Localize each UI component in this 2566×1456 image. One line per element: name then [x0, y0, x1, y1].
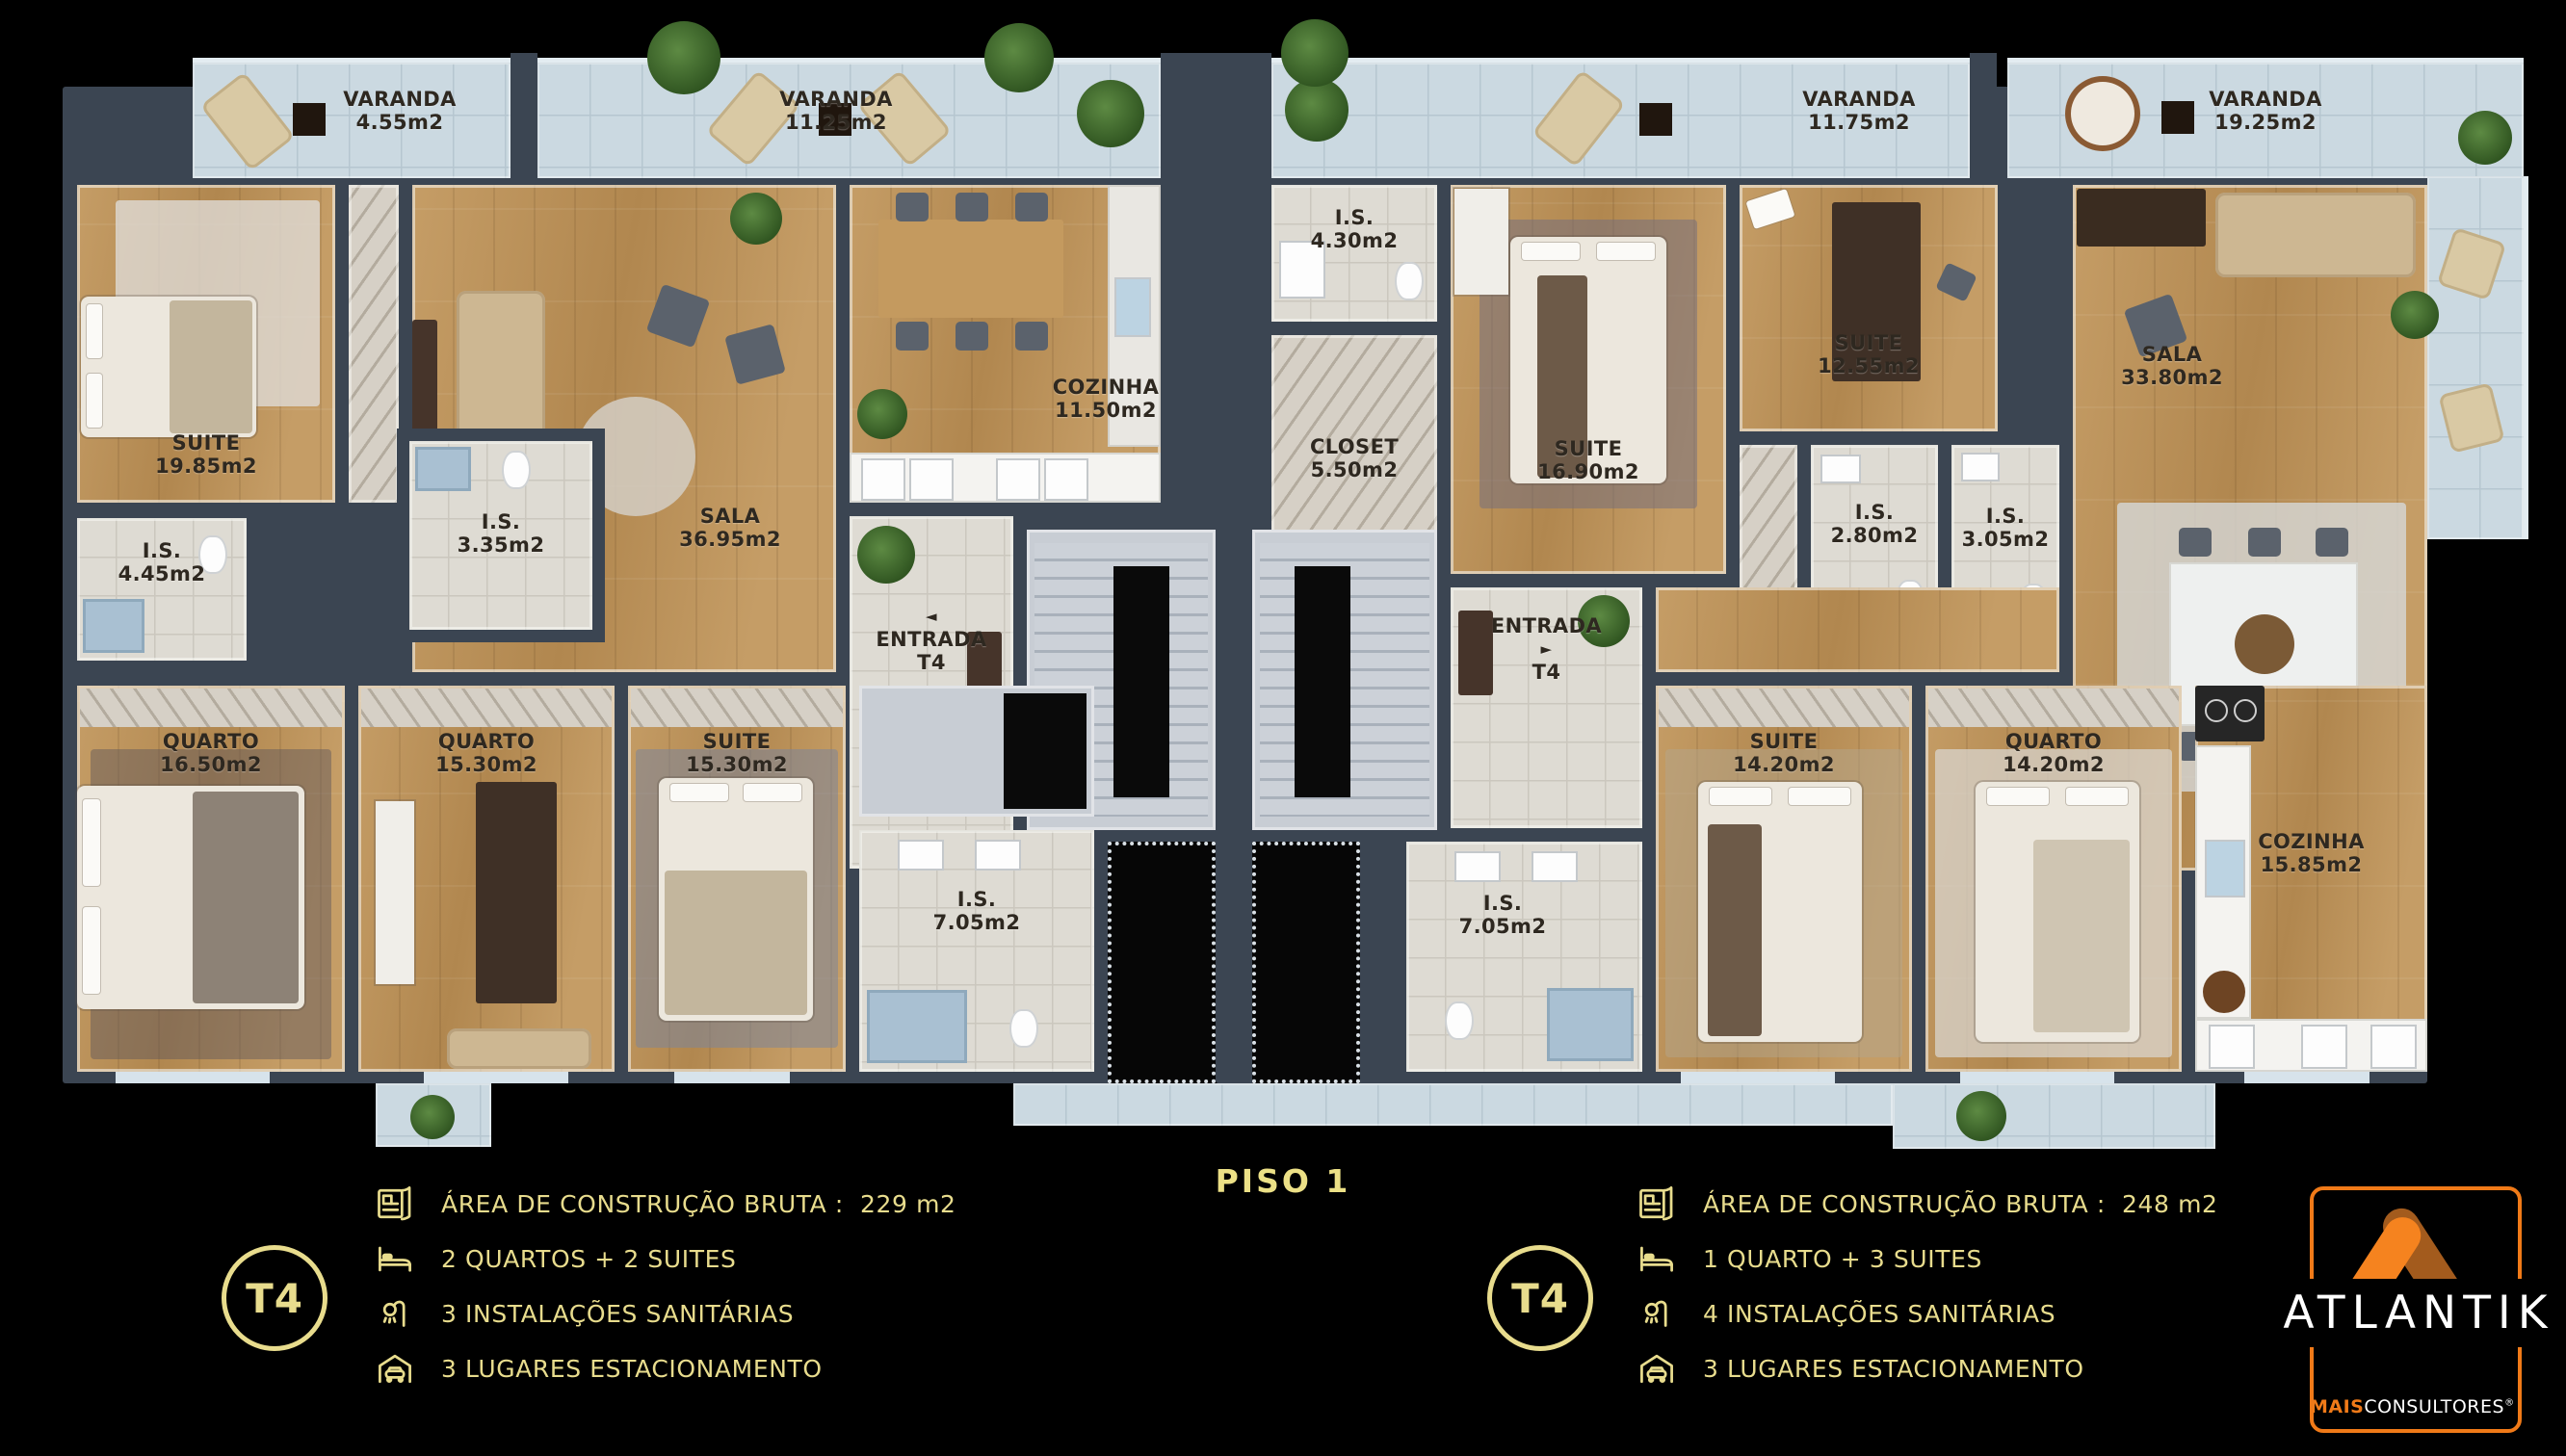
balcony-label: VARANDA11.25m2: [711, 88, 961, 134]
stool: [2203, 971, 2245, 1013]
blueprint-icon: [1636, 1183, 1678, 1225]
room-label: I.S.4.30m2: [1271, 206, 1437, 252]
room-quarto-14-20: QUARTO14.20m2: [1925, 686, 2182, 1072]
brand-wordmark: ATLANTIK: [2235, 1279, 2566, 1347]
room-label: SALA33.80m2: [2073, 343, 2271, 389]
window: [1960, 1072, 2114, 1083]
stairwell-right: [1252, 530, 1437, 830]
sideboard: [2077, 189, 2206, 247]
room-suite-12-55: SUITE12.55m2: [1740, 185, 1998, 431]
stair-landing-left: [859, 686, 1094, 817]
room-suite-19-85: SUITE19.85m2: [77, 185, 335, 503]
blueprint-icon: [374, 1183, 416, 1225]
chair: [1935, 262, 1977, 302]
closet-strip: [1659, 689, 1909, 727]
legend-row: 3 LUGARES ESTACIONAMENTO: [1636, 1347, 2218, 1390]
room-is-7-05-right: I.S.7.05m2: [1406, 842, 1642, 1072]
balcony-varanda-11-75: VARANDA11.75m2: [1271, 58, 1970, 178]
plant: [730, 193, 782, 245]
dresser: [1454, 189, 1508, 295]
bed-icon: [374, 1237, 416, 1280]
room-entrada-right: ENTRADA► T4: [1451, 587, 1642, 828]
balcony-label: VARANDA4.55m2: [289, 88, 511, 134]
legend-text: 2 QUARTOS + 2 SUITES: [441, 1245, 736, 1273]
brand-tagline: MAISCONSULTORES®: [2310, 1396, 2514, 1417]
room-label: SALA36.95m2: [586, 505, 875, 551]
room-label: QUARTO14.20m2: [1925, 730, 2182, 776]
toilet: [1009, 1009, 1038, 1048]
sink: [1961, 453, 2000, 481]
entry-arrow-icon: ◄: [854, 605, 1008, 628]
legend-row: 3 INSTALAÇÕES SANITÁRIAS: [374, 1292, 956, 1335]
bed-icon: [1636, 1237, 1678, 1280]
room-label: SUITE16.90m2: [1451, 437, 1726, 483]
sink: [1820, 455, 1861, 483]
sun-lounger: [1532, 69, 1625, 168]
toilet: [502, 451, 531, 489]
room-suite-16-90: SUITE16.90m2: [1451, 185, 1726, 574]
legend-left: ÁREA DE CONSTRUÇÃO BRUTA : 229 m2 2 QUAR…: [374, 1183, 956, 1390]
sink: [975, 840, 1021, 871]
shaft: [1004, 693, 1087, 809]
entry-arrow-icon: ►: [1455, 637, 1637, 661]
legend-text: 3 INSTALAÇÕES SANITÁRIAS: [441, 1300, 794, 1328]
window: [2244, 1072, 2370, 1083]
wardrobe-corridor: [349, 185, 399, 503]
room-label: SUITE12.55m2: [1740, 331, 1998, 377]
bottom-planter-left: [376, 1083, 491, 1147]
room-label: I.S.3.35m2: [409, 510, 592, 557]
legend-row: ÁREA DE CONSTRUÇÃO BRUTA : 229 m2: [374, 1183, 956, 1225]
plant: [1077, 80, 1144, 147]
plant: [984, 23, 1054, 92]
sofa: [447, 1028, 591, 1069]
balcony-side-wrap: [2427, 176, 2528, 539]
room-label: COZINHA11.50m2: [990, 376, 1221, 422]
armchair: [2437, 227, 2506, 300]
hallway-right: [1656, 587, 2059, 672]
shower-tray: [1547, 988, 1634, 1061]
sofa: [2215, 193, 2416, 277]
window: [116, 1072, 270, 1083]
room-label: CLOSET5.50m2: [1271, 435, 1437, 481]
closet-strip: [361, 689, 612, 727]
bed: [81, 297, 256, 437]
window: [1681, 1072, 1835, 1083]
bed: [659, 778, 813, 1021]
toilet: [1445, 1001, 1474, 1040]
room-label: I.S.7.05m2: [859, 888, 1094, 934]
room-is-7-05-left: I.S.7.05m2: [859, 830, 1094, 1072]
closet-strip: [80, 689, 342, 727]
plant: [857, 526, 915, 584]
stair-void: [1113, 566, 1169, 797]
sink: [1114, 277, 1151, 337]
legend-row: 1 QUARTO + 3 SUITES: [1636, 1237, 2218, 1280]
bottom-terrace-right: [1893, 1083, 2215, 1149]
legend-row: 3 LUGARES ESTACIONAMENTO: [374, 1347, 956, 1390]
room-label: QUARTO16.50m2: [77, 730, 345, 776]
shower-tray: [83, 599, 144, 653]
legend-row: 4 INSTALAÇÕES SANITÁRIAS: [1636, 1292, 2218, 1335]
shower-tray: [415, 447, 471, 491]
room-label: I.S.2.80m2: [1811, 501, 1938, 547]
room-is-3-35: I.S.3.35m2: [397, 429, 605, 642]
window: [674, 1072, 790, 1083]
garage-icon: [1636, 1347, 1678, 1390]
armchair: [724, 324, 786, 385]
plant: [1285, 78, 1348, 142]
shower-icon: [1636, 1292, 1678, 1335]
room-label: QUARTO15.30m2: [358, 730, 615, 776]
room-label: COZINHA15.85m2: [2195, 830, 2427, 876]
room-cozinha-11-50: COZINHA11.50m2: [850, 185, 1161, 503]
room-label: I.S.3.05m2: [1951, 505, 2059, 551]
legend-text: 3 LUGARES ESTACIONAMENTO: [1703, 1355, 2084, 1383]
closet-strip: [1928, 689, 2179, 727]
plant: [1281, 19, 1348, 87]
desk: [376, 801, 414, 984]
plant: [410, 1095, 455, 1139]
room-suite-15-30: SUITE15.30m2: [628, 686, 846, 1072]
balcony-divider-wall: [511, 53, 537, 176]
room-suite-14-20: SUITE14.20m2: [1656, 686, 1912, 1072]
room-cozinha-15-85: COZINHA15.85m2: [2195, 686, 2427, 1072]
balcony-label: VARANDA11.75m2: [1705, 88, 2013, 134]
elevator-shaft-left: [1108, 842, 1216, 1083]
sun-lounger: [200, 71, 296, 170]
bed: [1698, 782, 1862, 1042]
room-label: I.S.4.45m2: [77, 539, 247, 585]
room-label: SUITE15.30m2: [628, 730, 846, 776]
legend-row: ÁREA DE CONSTRUÇÃO BRUTA : 248 m2: [1636, 1183, 2218, 1225]
room-label: SUITE19.85m2: [77, 431, 335, 478]
shower-tray: [867, 990, 967, 1063]
stair-void: [1295, 566, 1350, 797]
cooktop: [2195, 686, 2265, 741]
room-quarto-16-50: QUARTO16.50m2: [77, 686, 345, 1072]
elevator-shaft-right: [1252, 842, 1360, 1083]
legend-text: 4 INSTALAÇÕES SANITÁRIAS: [1703, 1300, 2055, 1328]
closet-strip: [631, 689, 843, 727]
plant: [857, 389, 907, 439]
entry-walkway: [1013, 1083, 1893, 1126]
plant: [2391, 291, 2439, 339]
plant: [647, 21, 720, 94]
room-label: I.S.7.05m2: [1406, 892, 1599, 938]
balcony-label: VARANDA19.25m2: [2007, 88, 2524, 134]
shower-icon: [374, 1292, 416, 1335]
dining-table: [878, 220, 1063, 318]
atlantik-logo: ATLANTIK MAISCONSULTORES®: [2298, 1167, 2539, 1448]
balcony-varanda-4-55: VARANDA4.55m2: [193, 58, 511, 178]
armchair: [2438, 382, 2504, 454]
balcony-varanda-11-25: VARANDA11.25m2: [537, 58, 1161, 178]
pillow: [1745, 189, 1794, 229]
room-is-4-45: I.S.4.45m2: [77, 518, 247, 661]
room-label: ENTRADA► T4: [1451, 614, 1642, 684]
floorplan-poster: VARANDA4.55m2 VARANDA11.25m2 VARANDA11.7…: [0, 0, 2566, 1456]
legend-text: ÁREA DE CONSTRUÇÃO BRUTA : 248 m2: [1703, 1190, 2218, 1218]
centerpiece: [2235, 614, 2294, 674]
bed: [77, 786, 304, 1009]
sink: [898, 840, 944, 871]
sink: [1532, 851, 1578, 882]
bed: [1976, 782, 2139, 1042]
central-front-wall: [1161, 53, 1271, 176]
room-label: ◄ENTRADA T4: [850, 605, 1013, 674]
table: [476, 782, 557, 1003]
legend-text: 3 LUGARES ESTACIONAMENTO: [441, 1355, 823, 1383]
legend-right: ÁREA DE CONSTRUÇÃO BRUTA : 248 m2 1 QUAR…: [1636, 1183, 2218, 1390]
balcony-divider-wall: [1970, 53, 1997, 176]
window: [424, 1072, 568, 1083]
cube-side-table: [1639, 103, 1672, 136]
room-quarto-15-30: QUARTO15.30m2: [358, 686, 615, 1072]
legend-text: ÁREA DE CONSTRUÇÃO BRUTA : 229 m2: [441, 1190, 956, 1218]
floor-title: PISO 1: [1139, 1162, 1427, 1200]
plant: [1956, 1091, 2006, 1141]
room-label: SUITE14.20m2: [1656, 730, 1912, 776]
balcony-varanda-19-25: VARANDA19.25m2: [2007, 58, 2524, 178]
legend-text: 1 QUARTO + 3 SUITES: [1703, 1245, 1982, 1273]
room-is-4-30: I.S.4.30m2: [1271, 185, 1437, 322]
garage-icon: [374, 1347, 416, 1390]
sink: [1454, 851, 1501, 882]
legend-row: 2 QUARTOS + 2 SUITES: [374, 1237, 956, 1280]
toilet: [1395, 262, 1424, 300]
unit-badge-left: T4: [222, 1245, 327, 1351]
armchair: [646, 284, 711, 349]
unit-badge-right: T4: [1487, 1245, 1593, 1351]
